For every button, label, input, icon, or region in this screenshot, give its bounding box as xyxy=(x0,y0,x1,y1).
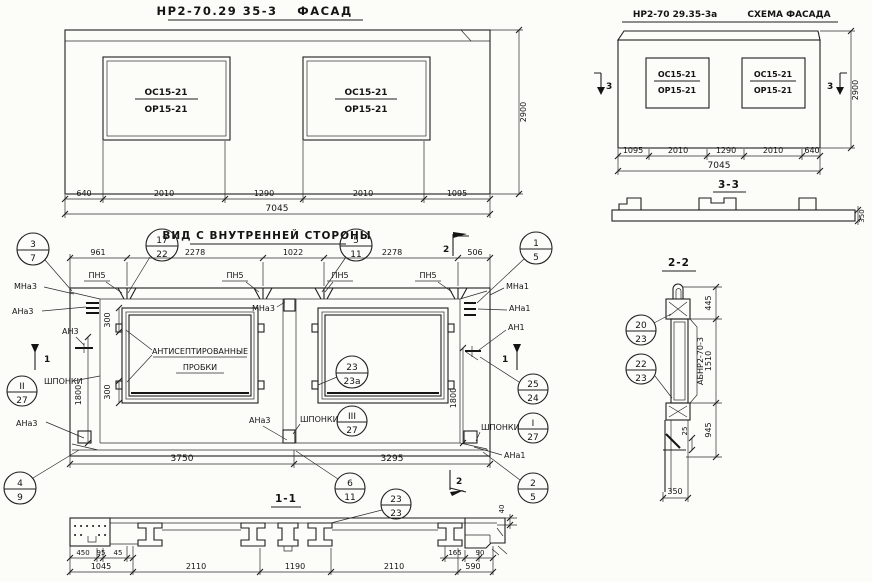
dim-label: 1045 xyxy=(91,562,111,571)
dim-label: 3295 xyxy=(381,454,404,464)
scheme-window-left: ОС15-21 ОР15-21 xyxy=(646,58,709,108)
s11-jamb-profile xyxy=(138,523,162,546)
balloon-top: 20 xyxy=(635,321,647,331)
callout-20-23: 20 23 xyxy=(626,314,671,345)
dim-label: 2278 xyxy=(382,248,402,257)
dim-label: 1800 xyxy=(74,385,83,405)
balloon-top: 17 xyxy=(156,236,167,246)
facade-view: НР2-70.29 35-3 ФАСАД ОС15-21 ОР15-21 ОС1… xyxy=(62,4,528,218)
dim-label: 2010 xyxy=(763,146,783,155)
balloon-top: 2 xyxy=(530,479,536,489)
plugs-note-line1: АНТИСЕПТИРОВАННЫЕ xyxy=(152,347,248,356)
window-mark-bottom: ОР15-21 xyxy=(344,105,387,115)
dim-label: 45 xyxy=(114,549,123,557)
scheme-window-right: ОС15-21 ОР15-21 xyxy=(742,58,805,108)
dim-label: 961 xyxy=(90,248,105,257)
callout-4-9: 4 9 xyxy=(4,450,79,504)
inner-view: ВИД С ВНУТРЕННЕЙ СТОРОНЫ xyxy=(4,229,552,523)
s11-mullion-profile xyxy=(278,523,298,546)
dim-label: 300 xyxy=(103,312,112,327)
section-2-2: 2-2 АБНР2-70-3 25 445 151 xyxy=(626,257,722,502)
dim-label: 1190 xyxy=(285,562,305,571)
section-3-3: 3-3 350 xyxy=(612,179,866,225)
dim-300-top: 300 xyxy=(103,305,122,335)
balloon-bottom: 23 xyxy=(635,335,646,345)
section-1-1-title: 1-1 xyxy=(275,493,297,505)
anchor-label: АНа3 xyxy=(16,419,37,428)
dim-height: 2900 xyxy=(851,80,860,100)
window-mark-top: ОС15-21 xyxy=(658,70,697,79)
dim-label: 2278 xyxy=(185,248,205,257)
dim-height: 2900 xyxy=(519,102,528,122)
scheme-panel-top-edge xyxy=(618,31,820,40)
balloon-top: 25 xyxy=(527,380,538,390)
mullion-key-tab xyxy=(283,430,295,443)
callout-1-27: I 27 xyxy=(518,413,548,443)
dim-label: 590 xyxy=(465,562,480,571)
s11-left-block xyxy=(70,518,110,546)
dim-1800-left: 1800 xyxy=(74,334,91,446)
panel-drawing-svg: НР2-70.29 35-3 ФАСАД ОС15-21 ОР15-21 ОС1… xyxy=(0,0,872,577)
technical-drawing-sheet: НР2-70.29 35-3 ФАСАД ОС15-21 ОР15-21 ОС1… xyxy=(0,0,872,577)
balloon-bottom: 9 xyxy=(17,493,23,503)
balloon-bottom: 11 xyxy=(350,250,361,260)
balloon-bottom: 23 xyxy=(635,374,646,384)
section-3-3-title: 3-3 xyxy=(718,179,740,191)
left-anchor-labels: МНа3 АНа3 АН3 АНа3 xyxy=(12,282,99,438)
balloon-bottom: 7 xyxy=(30,254,36,264)
balloon-top: II xyxy=(19,382,24,392)
balloon-bottom: 11 xyxy=(344,493,355,503)
section-3-3-rib-left xyxy=(619,198,641,210)
dim-label: 350 xyxy=(667,487,682,496)
window-mark-top: ОС15-21 xyxy=(754,70,793,79)
callout-1-5: 1 5 xyxy=(477,232,552,303)
dim-label: 1290 xyxy=(254,189,274,198)
callout-22-23: 22 23 xyxy=(626,354,672,398)
dim-label: 1800 xyxy=(449,388,458,408)
s22-window-frame xyxy=(671,319,688,403)
anchor-label: АН1 xyxy=(508,323,525,332)
lifting-loop-recesses xyxy=(118,288,467,299)
anchor-label: МНа3 xyxy=(252,304,275,313)
loop-label: ПН5 xyxy=(88,271,105,280)
section-mark-label: 1 xyxy=(502,355,508,365)
mullion-anchor xyxy=(284,299,295,311)
window-mark-bottom: ОР15-21 xyxy=(754,86,793,95)
facade-window-right: ОС15-21 ОР15-21 xyxy=(303,57,430,140)
s11-right-block xyxy=(465,518,507,555)
inner-mullion xyxy=(283,299,296,443)
facade-title: ФАСАД xyxy=(297,4,352,18)
dim-label: 40 xyxy=(498,505,506,514)
s11-jamb-profile xyxy=(438,523,462,546)
anchor-label: АНа1 xyxy=(509,304,530,313)
callout-6-11: 6 11 xyxy=(296,451,365,503)
section-mark-label: 2 xyxy=(456,477,462,487)
s11-jamb-profile xyxy=(241,523,265,546)
dim-label: 2010 xyxy=(353,189,373,198)
s11-jamb-profile xyxy=(308,523,332,546)
dim-label: 1095 xyxy=(623,146,643,155)
section-mark-label: 2 xyxy=(443,245,449,255)
section-mark-3-right: 3 xyxy=(827,73,847,95)
section-mark-2-top: 2 xyxy=(443,232,469,256)
window-mark-top: ОС15-21 xyxy=(144,88,187,98)
balloon-top: 6 xyxy=(347,479,353,489)
balloon-top: 3 xyxy=(30,240,36,250)
balloon-top: 22 xyxy=(635,360,646,370)
balloon-top: 4 xyxy=(17,479,23,489)
balloon-top: 1 xyxy=(533,239,539,249)
dim-label: 445 xyxy=(704,295,713,310)
section-3-3-rib-right xyxy=(799,198,816,210)
scheme-dimensions-bottom: 1095 2010 1290 2010 640 7045 xyxy=(615,146,823,175)
dim-label: 1095 xyxy=(447,189,467,198)
balloon-bottom: 23а xyxy=(344,377,361,387)
dim-label: 2010 xyxy=(154,189,174,198)
inner-dimensions-top: 961 2278 1022 2278 506 xyxy=(67,248,493,288)
window-mark-bottom: ОР15-21 xyxy=(658,86,697,95)
section-1-1: 1-1 40 4 xyxy=(67,493,517,575)
s11-dim-40: 40 xyxy=(497,505,517,529)
inner-window-right xyxy=(312,308,454,403)
balloon-bottom: 27 xyxy=(527,433,538,443)
window-mark-bottom: ОР15-21 xyxy=(144,105,187,115)
dim-label: 2010 xyxy=(668,146,688,155)
section-mark-1-left: 1 xyxy=(31,344,50,370)
dim-label: 1510 xyxy=(704,351,713,371)
balloon-top: 23 xyxy=(346,363,357,373)
anchor-label: АН3 xyxy=(62,327,79,336)
balloon-bottom: 5 xyxy=(530,493,536,503)
balloon-bottom: 22 xyxy=(156,250,167,260)
facade-dimensions-bottom: 640 2010 1290 2010 1095 7045 xyxy=(62,141,493,218)
loop-label: ПН5 xyxy=(331,271,348,280)
dim-label: 1290 xyxy=(716,146,736,155)
section-2-2-title: 2-2 xyxy=(668,257,690,269)
loop-label: ПН5 xyxy=(226,271,243,280)
dim-label: 506 xyxy=(467,248,482,257)
dim-label: 450 xyxy=(76,549,89,557)
anchor-label: МНа1 xyxy=(506,282,529,291)
callout-2-27: II 27 xyxy=(7,376,37,406)
section-mark-label: 1 xyxy=(44,355,50,365)
balloon-bottom: 24 xyxy=(527,394,539,404)
section-mark-2-bottom: 2 xyxy=(450,470,466,496)
dim-total: 7045 xyxy=(708,161,731,171)
balloon-top: 5 xyxy=(353,236,359,246)
section-3-3-rib-middle xyxy=(699,198,736,210)
inner-bottom-band xyxy=(72,443,488,450)
dim-label: 90 xyxy=(476,549,485,557)
key-tab-right xyxy=(464,431,477,443)
anchor-label: АНа3 xyxy=(249,416,270,425)
anchor-label: МНа3 xyxy=(14,282,37,291)
dim-300-bottom: 300 xyxy=(103,378,122,406)
dim-total: 7045 xyxy=(266,204,289,214)
dim-thickness: 350 xyxy=(858,209,866,222)
dim-label: 2110 xyxy=(186,562,206,571)
inner-panel-outline xyxy=(70,288,490,456)
inner-edge-lines xyxy=(100,299,460,443)
dim-label: 3750 xyxy=(171,454,194,464)
dim-label: 165 xyxy=(448,549,461,557)
scheme-view: НР2-70 29.35-3а СХЕМА ФАСАДА ОС15-21 ОР1… xyxy=(594,10,860,175)
section-mark-label: 3 xyxy=(606,82,612,92)
dim-label: 95 xyxy=(97,549,106,557)
facade-dimension-height: 2900 xyxy=(490,27,528,197)
dim-label: 640 xyxy=(804,146,819,155)
section-3-3-slab xyxy=(612,210,855,221)
facade-window-left: ОС15-21 ОР15-21 xyxy=(103,57,230,140)
dim-label: 945 xyxy=(704,422,713,437)
scheme-mark: НР2-70 29.35-3а xyxy=(633,10,717,20)
keys-label: ШПОНКИ xyxy=(300,415,339,424)
s22-lifting-loop xyxy=(673,284,683,299)
section-mark-3-left: 3 xyxy=(594,73,612,95)
plugs-note-line2: ПРОБКИ xyxy=(183,363,217,372)
anchor-label: АНа1 xyxy=(504,451,525,460)
inner-dimensions-bottom: 3750 3295 xyxy=(67,450,493,468)
window-mark-top: ОС15-21 xyxy=(344,88,387,98)
balloon-top: 23 xyxy=(390,495,401,505)
dim-label: 1022 xyxy=(283,248,303,257)
balloon-bottom: 5 xyxy=(533,253,539,263)
section-mark-1-right: 1 xyxy=(502,344,521,370)
s11-dimensions: 1045 2110 1190 2110 590 xyxy=(67,546,496,575)
balloon-top: I xyxy=(532,419,535,429)
balloon-bottom: 27 xyxy=(346,426,357,436)
dim-label: 300 xyxy=(103,384,112,399)
section-mark-label: 3 xyxy=(827,82,833,92)
dim-label: 640 xyxy=(76,189,91,198)
dim-label: 2110 xyxy=(384,562,404,571)
balloon-top: III xyxy=(348,412,356,422)
loop-label: ПН5 xyxy=(419,271,436,280)
facade-mark: НР2-70.29 35-3 xyxy=(157,4,278,18)
scheme-title: СХЕМА ФАСАДА xyxy=(747,10,830,20)
balloon-bottom: 27 xyxy=(16,396,27,406)
keys-label: ШПОНКИ xyxy=(44,377,83,386)
anchor-label: АНа3 xyxy=(12,307,33,316)
right-anchor-labels: МНа1 АНа1 АН1 АНа1 xyxy=(464,282,530,460)
plugs-note: АНТИСЕПТИРОВАННЫЕ ПРОБКИ xyxy=(126,330,248,382)
keys-label: ШПОНКИ xyxy=(481,423,520,432)
callout-3-27: III 27 xyxy=(337,406,367,436)
